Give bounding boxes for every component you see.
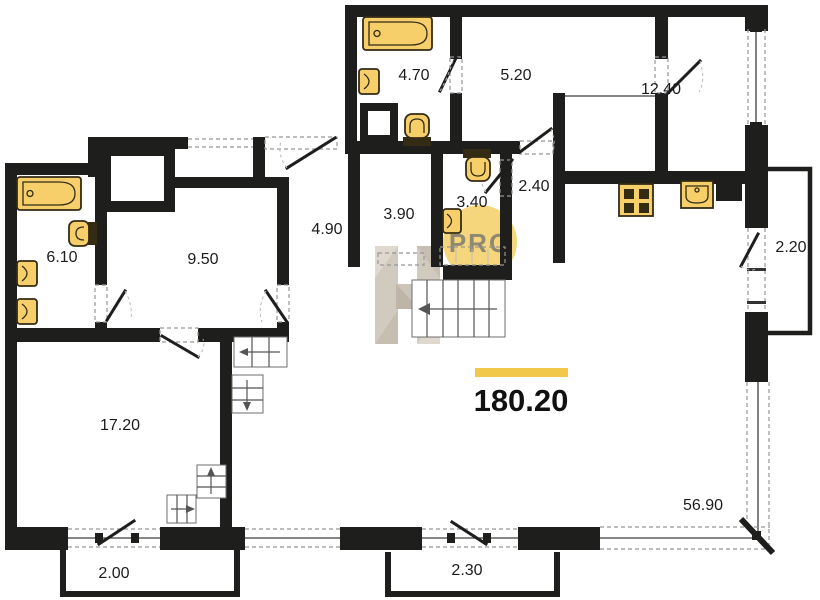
bathtub-icon	[17, 177, 81, 210]
bathtub-icon	[363, 17, 432, 50]
door	[440, 57, 462, 93]
balcony-door	[422, 522, 518, 547]
door	[520, 129, 554, 154]
steps-icon	[167, 495, 196, 523]
floorplan-canvas: PRO	[0, 0, 820, 600]
room-label-laundry: 3.90	[383, 206, 414, 223]
room-label-room-middle-left: 9.50	[187, 251, 218, 268]
steps-icon	[232, 375, 263, 413]
window	[188, 139, 253, 147]
floorplan-drawing: PRO	[0, 0, 820, 600]
kitchen-sink-icon	[681, 181, 713, 208]
sink-icon	[359, 69, 379, 94]
steps-icon	[197, 465, 226, 498]
room-label-bathroom-top: 4.70	[398, 67, 429, 84]
toilet-icon	[69, 221, 97, 246]
sink-icon	[17, 299, 37, 324]
window	[748, 24, 765, 130]
toilet-icon	[463, 149, 491, 181]
glazing	[600, 519, 773, 553]
room-label-hallway: 4.90	[311, 221, 342, 238]
stove-icon	[619, 184, 653, 216]
balcony-door	[68, 521, 160, 547]
toilet-icon	[403, 114, 431, 146]
door	[95, 285, 131, 322]
room-label-hall-small: 2.40	[518, 178, 549, 195]
room-label-room-top-right: 12.40	[641, 81, 681, 98]
dim-label-balcony-bottom-left: 2.00	[98, 565, 129, 582]
window	[245, 529, 340, 547]
door	[160, 328, 204, 357]
door	[260, 285, 289, 322]
sink-icon	[17, 261, 37, 286]
sink-icon	[443, 209, 461, 233]
dim-label-balcony-right: 2.20	[775, 239, 806, 256]
entrance-door	[265, 137, 337, 168]
steps-icon	[234, 337, 287, 367]
total-area: 180.20	[474, 368, 569, 418]
dim-label-balcony-bottom-middle: 2.30	[451, 562, 482, 579]
dim-label-terrace: 56.90	[683, 497, 723, 514]
room-label-bathroom-left: 6.10	[46, 249, 77, 266]
room-label-room-bottom-left: 17.20	[100, 417, 140, 434]
total-area-label: 180.20	[474, 383, 569, 418]
room-label-room-top-middle: 5.20	[500, 67, 531, 84]
total-area-accent-bar	[475, 368, 568, 377]
balcony-door	[741, 228, 766, 312]
room-label-wc-small: 3.40	[456, 194, 487, 211]
